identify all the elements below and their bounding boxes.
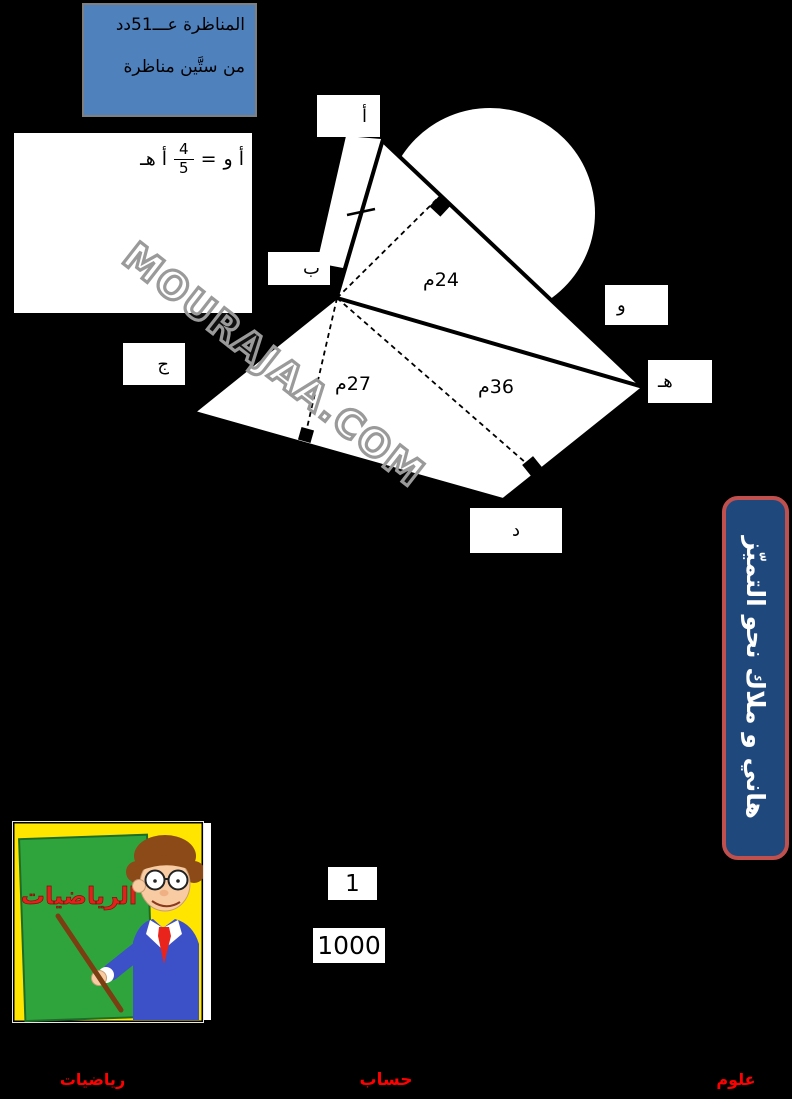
vertex-label-a: أ [317,95,380,137]
vertex-label-b: ب [268,252,330,285]
scale-numerator-box: 1 [328,867,377,900]
footer-word-calc: حساب [350,1070,422,1090]
vertex-label-j: ج [123,343,185,385]
white-strip-right-of-cartoon [204,823,211,1020]
scale-denominator-box: 1000 [313,928,385,963]
motto-banner-text: هاني و ملاك نحو التميّز [722,507,789,848]
footer-word-science: علوم [703,1070,769,1089]
vertex-label-h: هـ [648,360,712,403]
measurement-36m: 36م [468,376,524,398]
footer-word-math: رياضيات [45,1070,140,1089]
worksheet-page: { "top_box": { "line1": "المناظرة عـــ51… [0,0,792,1099]
vertex-label-w: و [605,285,668,325]
math-cartoon-image: الرياضيات [13,822,203,1022]
measurement-24m: 24م [413,269,469,291]
vertex-label-d: د [470,508,562,553]
chalkboard-text: الرياضيات [21,882,137,910]
